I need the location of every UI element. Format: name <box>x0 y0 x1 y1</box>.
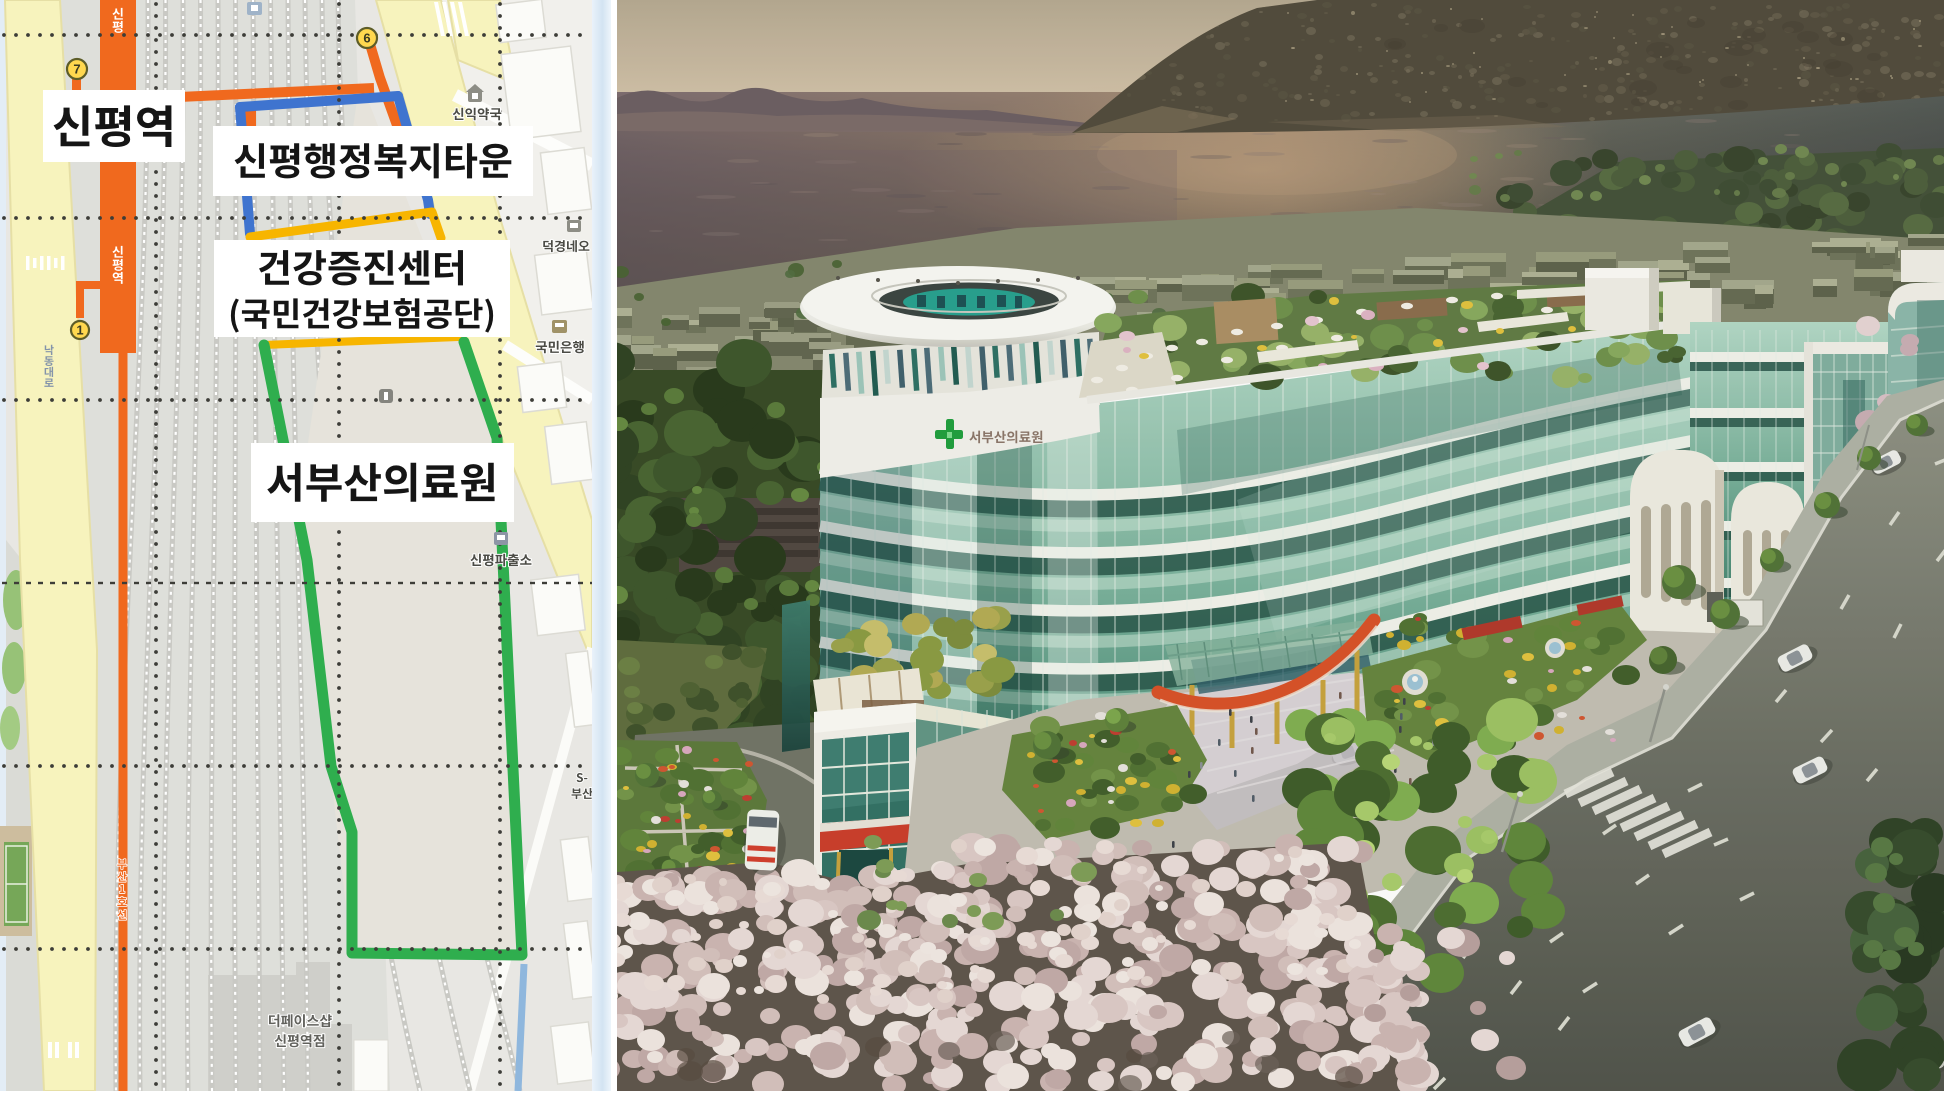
svg-text:1: 1 <box>76 323 83 338</box>
svg-text:6: 6 <box>363 31 370 46</box>
svg-text:7: 7 <box>73 62 80 77</box>
